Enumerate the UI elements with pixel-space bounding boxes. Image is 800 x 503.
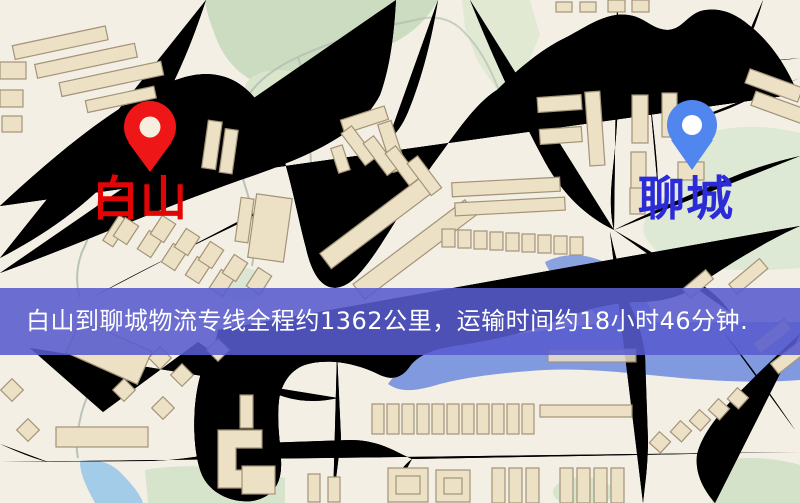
- origin-city-label: 白山: [92, 176, 188, 223]
- map-screenshot: 白山 聊城 白山到聊城物流专线全程约1362公里，运输时间约18小时46分钟.: [0, 0, 800, 503]
- destination-city-label: 聊城: [638, 176, 734, 223]
- route-info-banner: 白山到聊城物流专线全程约1362公里，运输时间约18小时46分钟.: [0, 288, 800, 355]
- map-canvas: [0, 0, 800, 503]
- route-info-text: 白山到聊城物流专线全程约1362公里，运输时间约18小时46分钟.: [26, 307, 748, 335]
